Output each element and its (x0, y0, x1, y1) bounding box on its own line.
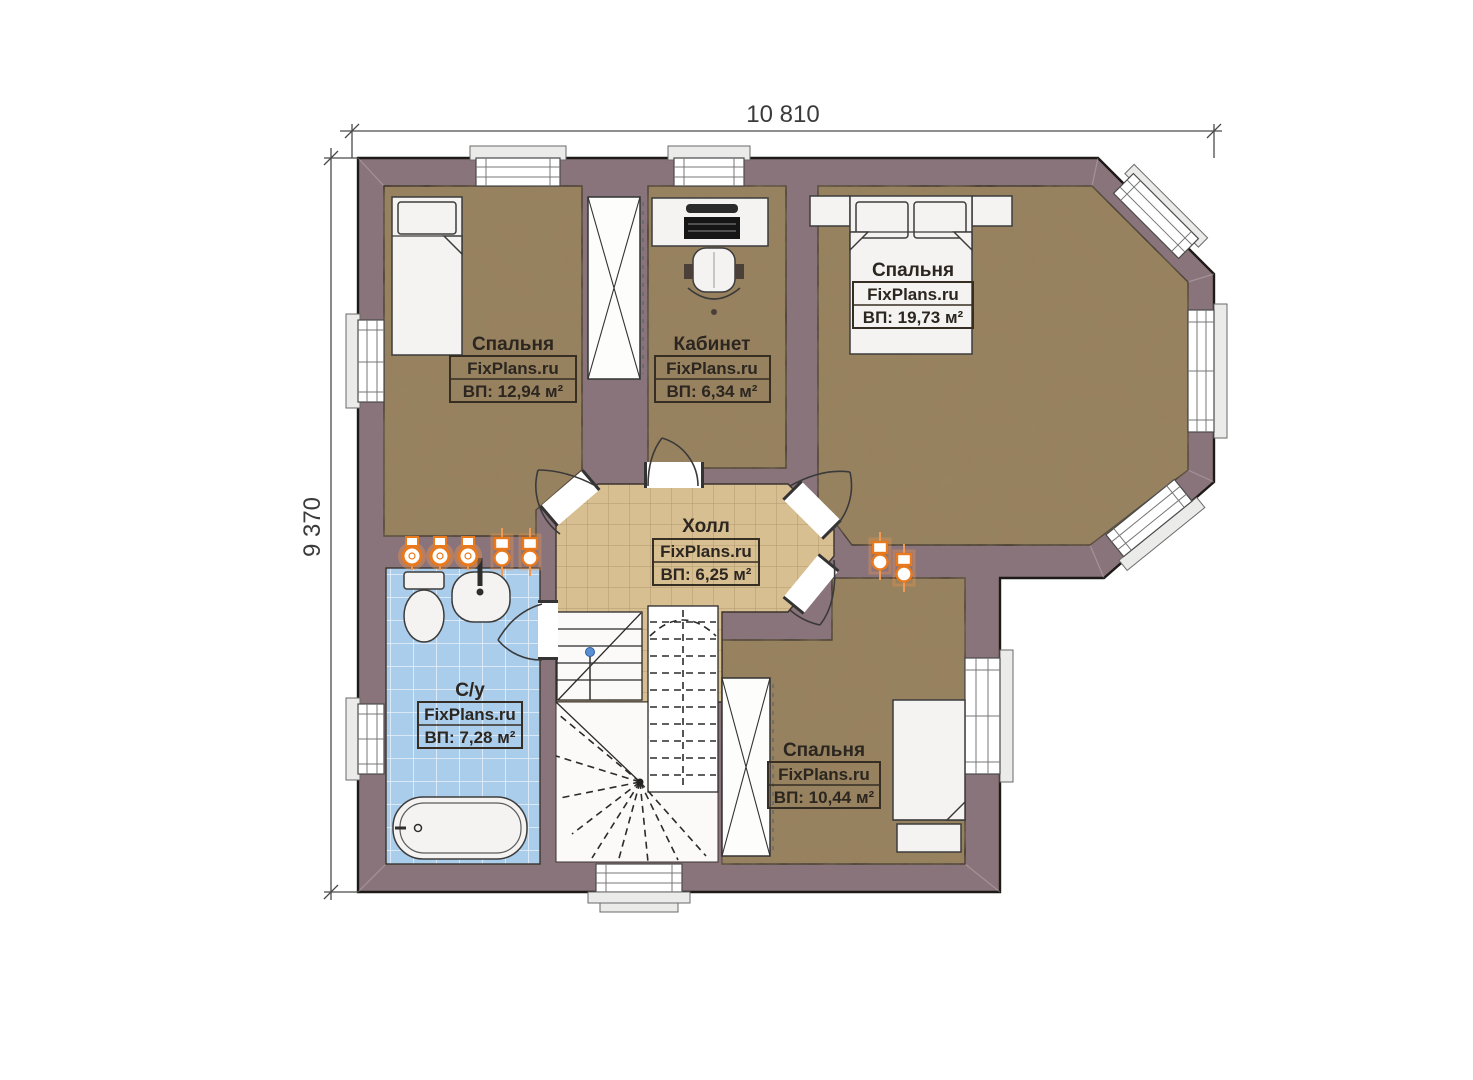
bed-single-top-left (392, 197, 462, 355)
laptop-keyboard (684, 217, 740, 239)
room-area: ВП: 6,25 м² (661, 565, 752, 584)
room-area: ВП: 7,28 м² (425, 728, 516, 747)
room-title: Спальня (783, 740, 865, 761)
window-bay-right (1188, 304, 1227, 438)
brand-watermark: FixPlans.ru (778, 765, 870, 784)
window-left-bedroom (346, 314, 384, 408)
brand-watermark: FixPlans.ru (467, 359, 559, 378)
toilet (404, 572, 444, 642)
room-title: Спальня (872, 260, 954, 281)
floor-plan-page: Спальня FixPlans.ru ВП: 12,94 м² Кабинет… (0, 0, 1473, 1080)
dimension-width-value: 10 810 (746, 101, 819, 128)
window-top-bedroom (470, 146, 566, 186)
room-title: Холл (682, 516, 730, 537)
window-left-bathroom (346, 698, 384, 780)
wardrobe-between-bedroom-office (588, 197, 643, 379)
window-bottom-stairs (588, 864, 690, 912)
room-title: Кабинет (674, 334, 751, 355)
floor-plan-canvas: Спальня FixPlans.ru ВП: 12,94 м² Кабинет… (0, 0, 1473, 1080)
room-title: Спальня (472, 334, 554, 355)
staircase (556, 606, 718, 862)
label-bedroom-bottom: Спальня FixPlans.ru ВП: 10,44 м² (768, 740, 880, 808)
brand-watermark: FixPlans.ru (424, 705, 516, 724)
window-right-bedroom-bottom (965, 650, 1013, 782)
dimension-height-value: 9 370 (299, 497, 326, 557)
window-top-office (668, 146, 750, 186)
laptop-screen (686, 204, 738, 213)
brand-watermark: FixPlans.ru (867, 285, 959, 304)
brand-watermark: FixPlans.ru (660, 542, 752, 561)
room-area: ВП: 12,94 м² (463, 382, 564, 401)
stair-newel-point (637, 779, 644, 786)
bathtub (393, 797, 527, 859)
room-area: ВП: 6,34 м² (667, 382, 758, 401)
stair-handrail-post (586, 648, 595, 657)
room-area: ВП: 10,44 м² (774, 788, 875, 807)
room-title: С/у (455, 680, 485, 701)
room-area: ВП: 19,73 м² (863, 308, 964, 327)
wardrobe-bedroom-bottom (722, 678, 773, 856)
desk-office (652, 198, 768, 246)
bed-single-bottom (893, 700, 965, 852)
brand-watermark: FixPlans.ru (666, 359, 758, 378)
dimension-left (324, 148, 358, 900)
